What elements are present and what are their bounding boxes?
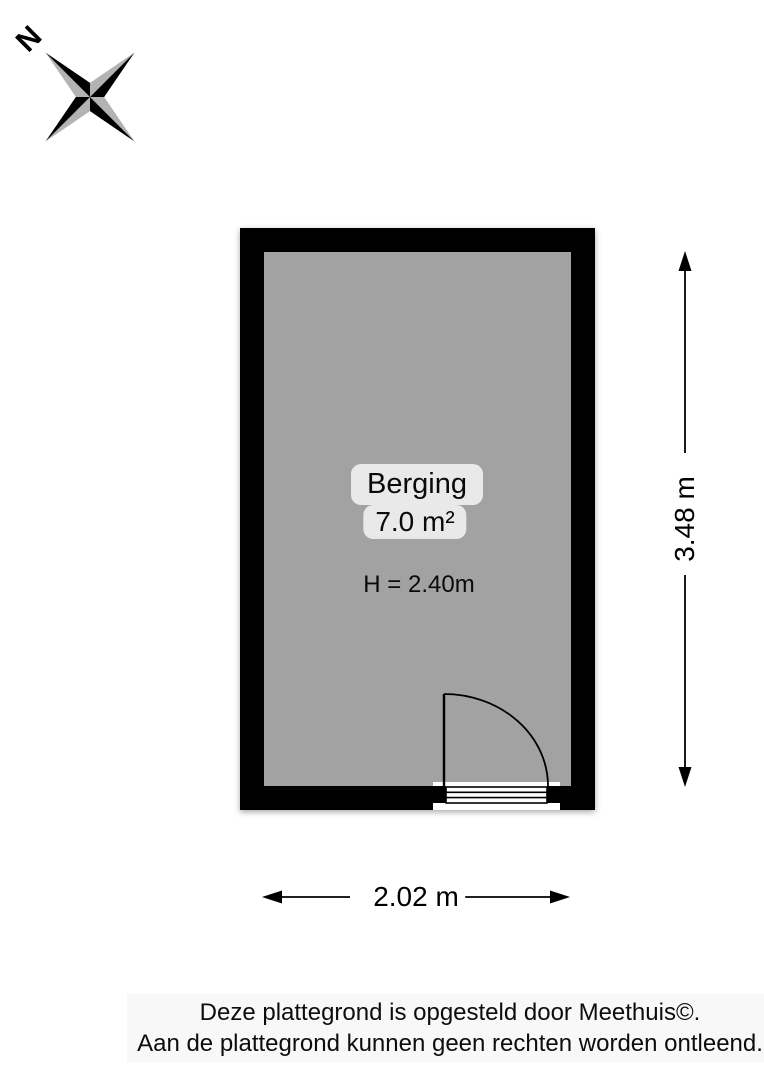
- dimension-label-width: 2.02 m: [367, 881, 465, 913]
- north-label: N: [15, 22, 48, 58]
- room-area-label: 7.0 m²: [363, 505, 466, 539]
- compass-rose: N: [15, 22, 165, 172]
- footer-line-2: Aan de plattegrond kunnen geen rechten w…: [137, 1028, 763, 1059]
- room-ceiling-height-label: H = 2.40m: [363, 571, 474, 599]
- dimension-label-height: 3.48 m: [669, 476, 701, 562]
- footer-disclaimer: Deze plattegrond is opgesteld door Meeth…: [127, 994, 764, 1062]
- room-name-label: Berging: [351, 464, 483, 505]
- footer-line-1: Deze plattegrond is opgesteld door Meeth…: [137, 997, 763, 1028]
